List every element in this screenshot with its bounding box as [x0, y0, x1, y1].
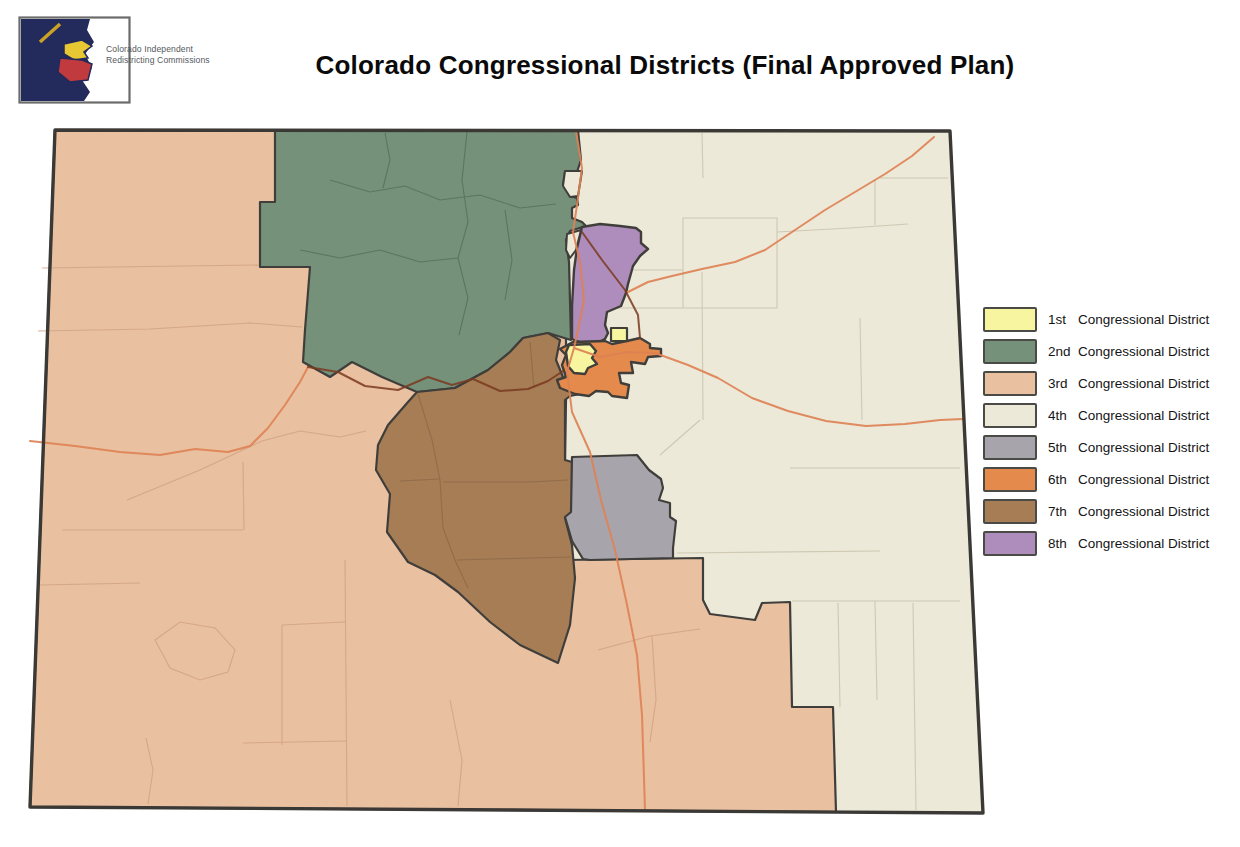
legend-ordinal: 7th: [1048, 504, 1078, 519]
legend-ordinal: 2nd: [1048, 344, 1078, 359]
legend-label: Congressional District: [1078, 536, 1209, 551]
page: { "header": { "logo_text_line1": "Colora…: [0, 0, 1240, 847]
legend-swatch-6: [983, 467, 1037, 492]
legend-swatch-2: [983, 339, 1037, 364]
legend-swatch-1: [983, 307, 1037, 332]
legend-swatch-3: [983, 371, 1037, 396]
legend: 1st Congressional District 2nd Congressi…: [983, 306, 1209, 562]
legend-label: Congressional District: [1078, 504, 1209, 519]
legend-label: Congressional District: [1078, 472, 1209, 487]
legend-swatch-8: [983, 531, 1037, 556]
legend-item-8: 8th Congressional District: [983, 530, 1209, 556]
legend-item-5: 5th Congressional District: [983, 434, 1209, 460]
legend-ordinal: 1st: [1048, 312, 1078, 327]
legend-item-1: 1st Congressional District: [983, 306, 1209, 332]
legend-label: Congressional District: [1078, 312, 1209, 327]
legend-label: Congressional District: [1078, 408, 1209, 423]
district-1-enclave: [611, 328, 627, 341]
legend-item-2: 2nd Congressional District: [983, 338, 1209, 364]
legend-item-6: 6th Congressional District: [983, 466, 1209, 492]
legend-item-4: 4th Congressional District: [983, 402, 1209, 428]
legend-item-7: 7th Congressional District: [983, 498, 1209, 524]
legend-swatch-7: [983, 499, 1037, 524]
legend-ordinal: 4th: [1048, 408, 1078, 423]
legend-swatch-4: [983, 403, 1037, 428]
legend-label: Congressional District: [1078, 440, 1209, 455]
legend-label: Congressional District: [1078, 344, 1209, 359]
legend-label: Congressional District: [1078, 376, 1209, 391]
legend-ordinal: 6th: [1048, 472, 1078, 487]
legend-swatch-5: [983, 435, 1037, 460]
legend-ordinal: 3rd: [1048, 376, 1078, 391]
legend-item-3: 3rd Congressional District: [983, 370, 1209, 396]
legend-ordinal: 8th: [1048, 536, 1078, 551]
legend-ordinal: 5th: [1048, 440, 1078, 455]
